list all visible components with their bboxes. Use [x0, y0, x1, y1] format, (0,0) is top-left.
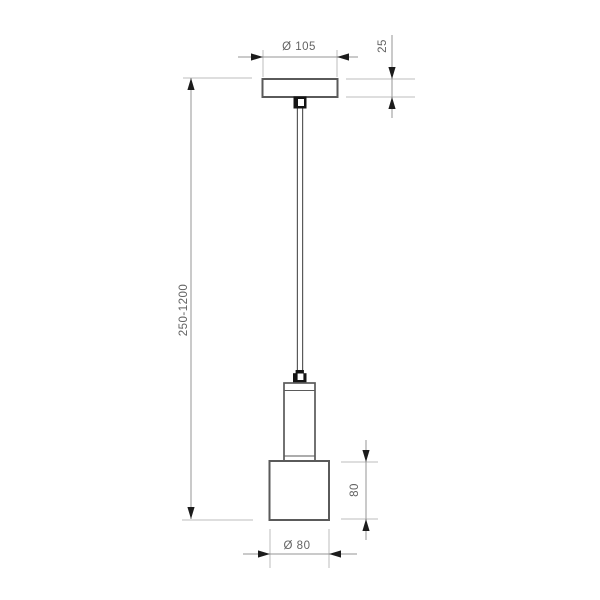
arrow-shade-diameter-right — [329, 550, 341, 557]
arrow-canopy-height-bottom — [388, 97, 395, 109]
label-canopy-height: 25 — [377, 39, 389, 53]
lamp-tube — [284, 383, 315, 461]
arrow-suspension-top — [187, 78, 194, 90]
pendant-lamp — [263, 79, 338, 520]
ceiling-canopy — [263, 79, 338, 97]
label-shade-diameter: Ø 80 — [284, 540, 311, 552]
label-suspension-length: 250-1200 — [178, 284, 190, 337]
lamp-cord-grip-step-right — [304, 370, 307, 373]
arrow-canopy-height-top — [388, 67, 395, 79]
lamp-shade — [270, 461, 330, 520]
arrow-shade-diameter-left — [258, 550, 270, 557]
lamp-cord-grip-step-left — [293, 370, 296, 373]
arrow-suspension-bottom — [187, 507, 194, 519]
arrow-canopy-diameter-left — [251, 53, 263, 60]
drawing-canvas — [0, 0, 600, 600]
label-canopy-diameter: Ø 105 — [282, 41, 316, 53]
label-shade-height: 80 — [349, 483, 361, 497]
arrow-canopy-diameter-right — [337, 53, 349, 60]
arrow-shade-height-bottom — [362, 519, 369, 531]
lamp-cord-grip-hole — [298, 374, 304, 381]
technical-drawing: Ø 105 25 250-1200 80 Ø 80 — [0, 0, 600, 600]
ceiling-cord-grip-hole — [298, 99, 304, 106]
arrow-shade-height-top — [362, 450, 369, 462]
